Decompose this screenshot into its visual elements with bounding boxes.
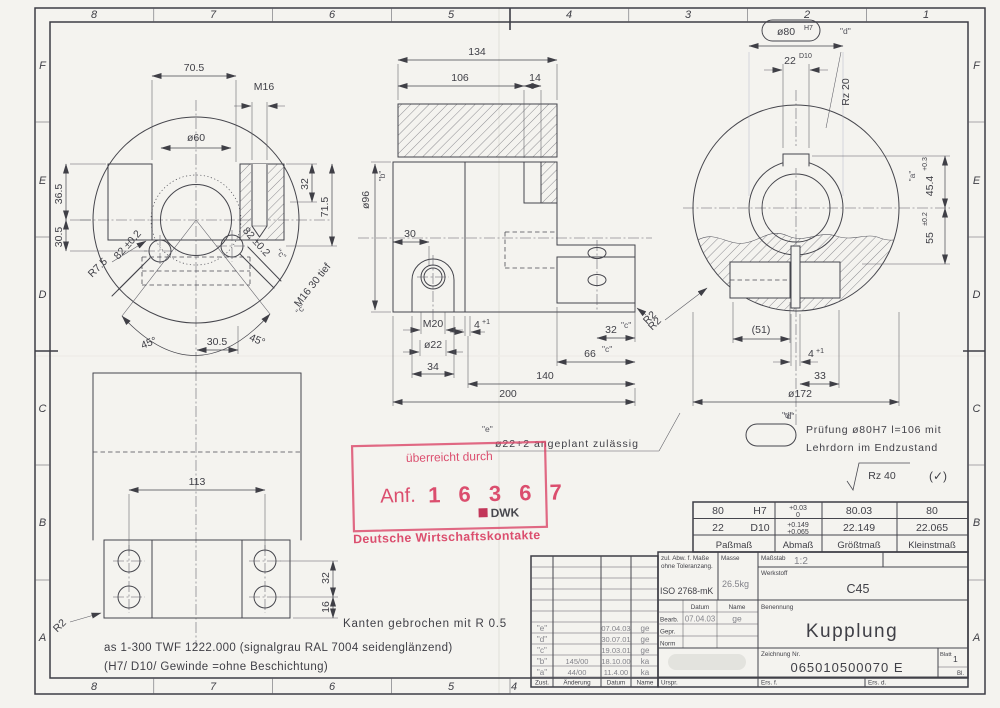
erased-smudge [668, 654, 746, 670]
dim-134: 134 [468, 46, 486, 58]
fit-header: Paßmaß [716, 540, 753, 551]
dim-d96: ø96 [360, 191, 372, 209]
drawing-number: 065010500070 E [790, 660, 903, 675]
dim-16: 16 [320, 601, 332, 613]
gepr-label: Gepr. [660, 629, 676, 636]
dim-66: 66 [584, 348, 596, 360]
zone-row: C [973, 403, 981, 415]
zone-row: B [973, 517, 980, 529]
end-slot-center [791, 246, 800, 308]
fit-dev-hi: +0.03 [789, 505, 807, 512]
fit-header: Kleinstmaß [908, 540, 956, 551]
dim-r2: R2 [51, 617, 69, 635]
dim-36-5: 36.5 [53, 184, 65, 205]
zone-col: 8 [91, 681, 98, 693]
rev-aenderung: 44/00 [568, 668, 587, 677]
dim-106: 106 [451, 72, 469, 84]
ref-c: "c" [602, 344, 612, 354]
zone-row: A [38, 632, 46, 644]
front-view: 70.5 M16 ø60 36.5 30.5 32 71.5 82 ±0.2 8… [53, 62, 337, 648]
dim-30: 30 [404, 228, 416, 240]
zone-col: 7 [210, 681, 217, 693]
fit-min: 80 [926, 505, 938, 517]
tol-label-2: ohne Toleranzang. [661, 563, 713, 570]
pruefung-note-1: Prüfung ø80H7 l=106 mit [806, 424, 941, 436]
material-value: C45 [847, 582, 870, 596]
note-kanten: Kanten gebrochen mit R 0.5 [343, 618, 507, 630]
name-label: Name [729, 604, 746, 611]
dim-4: 4 [808, 348, 814, 360]
blatt-number: 1 [953, 654, 958, 664]
fit-dev-hi: +0.149 [787, 522, 809, 529]
rev-datum: 30.07.01 [601, 635, 630, 644]
fit-table: 80 H7 +0.03 0 80.03 80 22 D10 +0.149 +0.… [693, 502, 968, 552]
bottom-view: 113 32 16 R2 [51, 373, 338, 635]
ref-d: "d" [840, 26, 851, 36]
material-label: Werkstoff [761, 570, 788, 577]
stamp-line-1: überreicht durch [406, 449, 493, 465]
dim-22-fit: D10 [799, 53, 812, 60]
zone-col: 5 [448, 681, 455, 693]
datum-label: Datum [691, 604, 710, 611]
ers-f-label: Ers. f. [761, 680, 778, 687]
section-body [393, 162, 635, 312]
rev-zust: "e" [537, 624, 547, 633]
rev-header: Datum [607, 680, 626, 687]
tol-standard: ISO 2768-mK [660, 586, 713, 596]
zeichnung-label: Zeichnung Nr. [761, 651, 800, 658]
dim-113: 113 [189, 476, 206, 488]
dim-51: (51) [752, 324, 771, 336]
benennung-label: Benennung [761, 604, 794, 611]
urspr-label: Urspr. [661, 680, 678, 687]
zone-row: C [39, 403, 47, 415]
zone-row: F [973, 60, 981, 72]
part-title: Kupplung [806, 621, 898, 642]
mass-value: 26.5kg [722, 579, 749, 589]
rev-datum: 18.10.00 [601, 657, 630, 666]
rev-name: ge [641, 635, 650, 644]
end-view: ø80 H7 "d" 22 D10 Rz 20 "a" 45.4 +0.3 55… [646, 20, 950, 490]
end-slot-right [800, 262, 840, 298]
ref-d: "d" [782, 410, 793, 420]
title-block: zul. Abw. f. Maße ohne Toleranzang. ISO … [658, 552, 968, 687]
rev-datum: 19.03.01 [601, 646, 630, 655]
dim-30-5-bottom: 30.5 [207, 336, 228, 348]
dim-r7-5: R7.5 [86, 256, 110, 280]
rev-zust: "a" [537, 668, 547, 677]
zone-row: F [39, 60, 47, 72]
fit-dev-lo: +0.065 [787, 529, 809, 536]
dim-22: 22 [784, 55, 796, 67]
note-angeplant: ø22+2 angeplant zulässig [495, 438, 639, 450]
dim-m16: M16 [254, 81, 275, 93]
dwk-logo-icon [478, 508, 487, 517]
dim-71-5: 71.5 [319, 197, 331, 218]
stamp-prefix: Anf. [380, 485, 416, 508]
fit-dev-lo: 0 [796, 512, 800, 519]
dim-45-left: 45° [139, 335, 158, 352]
scale-label: Maßstab [761, 555, 786, 562]
bl-label: Bl. [957, 671, 964, 677]
bearb-name: ge [732, 614, 742, 624]
stamp-line-2: Deutsche Wirtschaftskontakte [353, 528, 541, 546]
dim-45-4-tol: +0.3 [922, 157, 929, 171]
zone-col: 8 [91, 9, 98, 21]
bearb-date: 07.04.03 [685, 615, 715, 624]
fit-fit: H7 [753, 505, 767, 517]
front-left-slot [108, 164, 152, 240]
dim-d22: ø22 [424, 339, 442, 351]
stamp-number: 1 6 3 6 7 [428, 479, 568, 507]
dim-33: 33 [814, 370, 826, 382]
note-coating: as 1-300 TWF 1222.000 (signalgrau RAL 70… [104, 642, 453, 654]
callout-fit: H7 [804, 25, 813, 32]
fit-header: Abmaß [783, 540, 814, 551]
zone-row: E [39, 175, 47, 187]
rev-header: Name [637, 680, 654, 687]
dim-d172: ø172 [788, 388, 812, 400]
dim-34: 34 [427, 361, 439, 373]
dim-m20: M20 [423, 318, 444, 330]
fit-max: 22.149 [843, 522, 875, 534]
rev-name: ge [641, 646, 650, 655]
zone-row: B [39, 517, 46, 529]
red-stamp: überreicht durch Anf. 1 6 3 6 7 DWK Deut… [351, 441, 569, 546]
rz20: Rz 20 [840, 78, 852, 106]
fit-max: 80.03 [846, 505, 872, 517]
dim-200: 200 [499, 388, 517, 400]
dim-30-5: 30.5 [53, 227, 65, 248]
section-hatched-block [398, 104, 557, 157]
pruefung-oval [746, 424, 796, 446]
dim-32: 32 [605, 324, 617, 336]
zone-row: D [973, 289, 981, 301]
rev-zust: "b" [537, 657, 547, 666]
callout-d80: ø80 [777, 26, 795, 38]
ref-b: "b" [377, 171, 387, 182]
ref-c: "c" [274, 247, 288, 261]
rev-name: ka [641, 668, 650, 677]
rev-header: Änderung [563, 679, 591, 687]
drawing-sheet: 8 7 6 5 4 3 2 1 8 7 6 5 4 F E D C B A F … [0, 0, 1000, 708]
section-right-block [557, 257, 635, 303]
rev-zust: "d" [537, 635, 547, 644]
dim-4: 4 [474, 319, 480, 331]
revision-table: "e" 07.04.03 ge "d" 30.07.01 ge "c" 19.0… [531, 556, 658, 687]
dim-m16-tief: M16 30 tief [292, 261, 333, 309]
ref-a: "a" [907, 171, 917, 182]
zone-col: 4 [511, 681, 517, 693]
dim-4-tol: +1 [482, 319, 490, 326]
zone-col: 6 [329, 9, 336, 21]
zone-row: D [39, 289, 47, 301]
base-plate [104, 540, 290, 618]
dim-55-tol: ±0.2 [922, 212, 929, 226]
dim-32: 32 [299, 178, 311, 190]
norm-label: Norm [660, 641, 675, 648]
zone-row: A [972, 632, 980, 644]
rev-header: Zust. [535, 680, 549, 687]
zone-col: 7 [210, 9, 217, 21]
zone-col: 6 [329, 681, 336, 693]
dim-45-4: 45.4 [924, 176, 936, 197]
rev-zust: "c" [537, 646, 547, 655]
dim-14: 14 [529, 72, 541, 84]
scale-value: 1:2 [794, 556, 808, 567]
dim-d60: ø60 [187, 132, 205, 144]
rz40: Rz 40 [868, 470, 896, 482]
fit-min: 22.065 [916, 522, 948, 534]
fit-nom: 22 [712, 522, 724, 534]
blatt-label: Blatt [940, 652, 952, 658]
tol-label-1: zul. Abw. f. Maße [661, 555, 709, 562]
mass-label: Masse [721, 555, 740, 562]
dim-45-right: 45° [248, 332, 267, 349]
notes: Kanten gebrochen mit R 0.5 as 1-300 TWF … [104, 618, 507, 673]
fit-fit: D10 [750, 522, 769, 534]
ref-e: "e" [482, 424, 493, 434]
check-symbol: (✓) [929, 469, 947, 483]
zone-row: E [973, 175, 981, 187]
rev-name: ka [641, 657, 650, 666]
fit-nom: 80 [712, 505, 724, 517]
rev-datum: 07.04.03 [601, 624, 630, 633]
dim-32: 32 [320, 572, 332, 584]
zone-col: 3 [685, 9, 692, 21]
rev-name: ge [641, 624, 650, 633]
dwk-logo-text: DWK [490, 505, 519, 520]
ers-d-label: Ers. d. [868, 680, 886, 687]
zone-col: 2 [803, 9, 810, 21]
bearb-label: Bearb. [660, 617, 679, 624]
dim-70-5: 70.5 [184, 62, 205, 74]
section-view: 134 106 14 ø96 "b" 30 M20 4 +1 ø22 34 32… [358, 46, 680, 451]
pruefung-note-2: Lehrdorn im Endzustand [806, 442, 938, 454]
dim-55: 55 [924, 232, 936, 244]
rev-datum: 11.4.00 [604, 668, 628, 677]
dim-4-tol: +1 [816, 348, 824, 355]
dim-140: 140 [536, 370, 554, 382]
rev-aenderung: 145/00 [566, 657, 589, 666]
zone-col: 4 [566, 9, 572, 21]
zone-col: 5 [448, 9, 455, 21]
note-gewinde: (H7/ D10/ Gewinde =ohne Beschichtung) [104, 661, 328, 673]
ref-c: "c" [621, 320, 631, 330]
zone-col: 1 [923, 9, 929, 21]
fit-header: Größtmaß [837, 540, 880, 551]
